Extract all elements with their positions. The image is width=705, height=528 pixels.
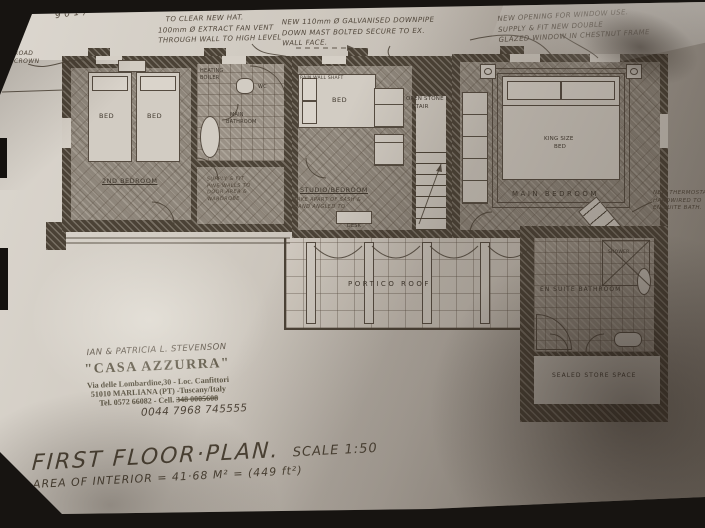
bed-label: BED (147, 112, 162, 120)
wardrobe-icon (462, 92, 488, 204)
bedroom2-label: 2ND BEDROOM (102, 177, 158, 185)
window-gap (322, 56, 346, 64)
ensuite-label: EN SUITE BATHROOM (540, 286, 621, 293)
main-bed-label-2: BED (554, 144, 566, 150)
bed-fold-line (503, 105, 619, 106)
stair-label-1: OPEN STONE (406, 96, 444, 102)
studio-note: TAKE APART OF SASH &HAND ANGLED TO (294, 197, 361, 210)
stair-label-2: STAIR (412, 104, 429, 110)
nightstand-icon (626, 64, 642, 79)
shaft-label: RAIN WALL SHAFT (300, 76, 343, 81)
bathroom-label-1: MAIN (230, 112, 244, 118)
wc-label: WC (258, 84, 267, 90)
window-gap (62, 118, 71, 148)
bathtub-icon (200, 116, 220, 158)
desk-icon: DESK (336, 211, 372, 224)
store-label: SEALED STORE SPACE (552, 372, 636, 379)
studio-bed-label: BED (332, 96, 347, 104)
scale-label: SCALE 1:50 (292, 441, 378, 460)
store-floor (534, 356, 660, 404)
backdrop-notch (0, 138, 7, 178)
corner-scribble: 9 0 1 ) (54, 6, 88, 24)
bathroom-label-2: BATHROOM (226, 119, 257, 125)
stair-treads (416, 150, 446, 230)
window-gap (510, 54, 540, 62)
cupboard-icon (374, 134, 404, 166)
main-bedroom-label: MAIN BEDROOM (512, 190, 599, 198)
pillow-icon (140, 76, 176, 91)
window-note: NEW OPENING FOR WINDOW USE. SUPPLY & FIT… (497, 6, 650, 45)
toilet-icon (614, 332, 642, 347)
pillow-icon (561, 81, 615, 100)
window-gap (660, 114, 668, 148)
pillow-icon (302, 78, 317, 101)
basin-icon (637, 268, 651, 295)
pillar-icon (306, 242, 316, 324)
thermostat-note: NEW THERMOSTAT HARDWIRED TO EN SUITE BAT… (653, 190, 705, 213)
backdrop-notch (0, 248, 8, 310)
window-gap (222, 56, 246, 64)
title-block: FIRST FLOOR·PLAN. SCALE 1:50 AREA OF INT… (31, 429, 453, 491)
pillow-icon (507, 81, 561, 100)
boiler-label-2: BOILER (200, 75, 219, 81)
kingsize-bed-icon (502, 76, 620, 180)
drainpipe-note: NEW 110mm Ø GALVANISED DOWNPIPE DOWN MAS… (282, 15, 435, 49)
pillar-icon (480, 242, 490, 324)
road-crown-note: ROADCROWN (14, 50, 40, 67)
portico-label: PORTICO ROOF (348, 280, 431, 288)
toilet-icon (236, 78, 254, 94)
photo-of-floor-plan: BED BED 2ND BEDROOM WC HEATING BOILER MA… (0, 0, 705, 528)
headboard-cabinet (118, 60, 146, 72)
main-bed-label-1: KING SIZE (544, 136, 574, 142)
studio-label: STUDIO/BEDROOM (300, 186, 368, 194)
bed-label: BED (99, 112, 114, 120)
pillow-icon (92, 76, 128, 91)
window-gap (590, 54, 620, 62)
boiler-label-1: HEATING (200, 68, 224, 74)
shower-label: SHOWER (608, 250, 629, 255)
nightstand-icon (480, 64, 496, 79)
hall-note: SUPPLY & FITPINE WALLS TO DOOR AREA &WAR… (207, 176, 251, 203)
linen-cupboard-icon (374, 88, 404, 128)
fan-vent-note: TO CLEAR NEW HAT. 100mm Ø EXTRACT FAN VE… (158, 11, 282, 46)
paper-sheet: BED BED 2ND BEDROOM WC HEATING BOILER MA… (0, 0, 705, 528)
address-block: IAN & PATRICIA L. STEVENSON "CASA AZZURR… (28, 338, 287, 426)
pillow-icon (302, 101, 317, 124)
